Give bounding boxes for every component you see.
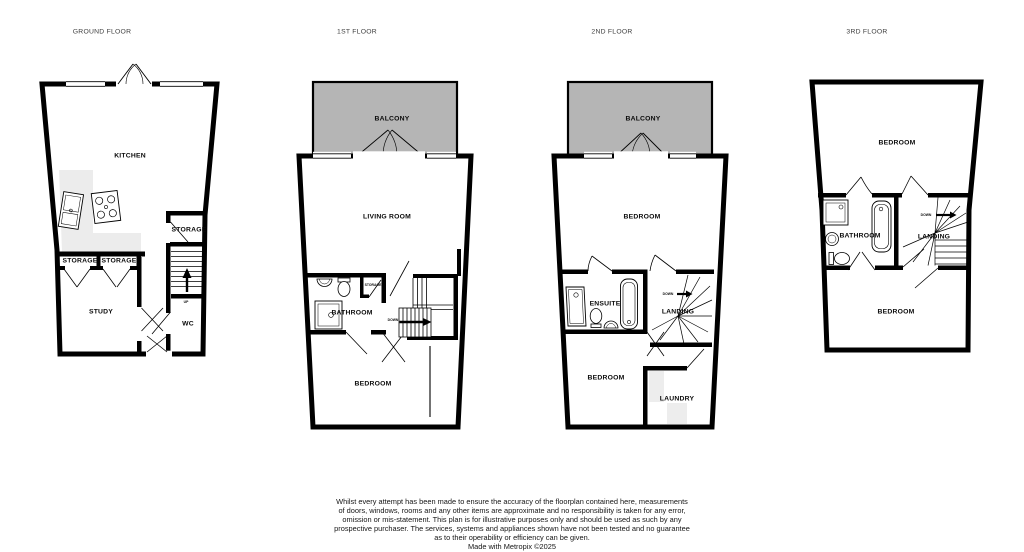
metropix-credit: Made with Metropix ©2025 bbox=[282, 542, 742, 551]
bathroom-toilet-icon bbox=[829, 253, 850, 265]
first-window-right bbox=[427, 152, 456, 161]
room-label-laundry: LAUNDRY bbox=[660, 396, 694, 403]
first-floor-plan bbox=[285, 55, 485, 435]
disclaimer-line: as to their operability or efficiency ca… bbox=[282, 533, 742, 542]
floorplan-page: GROUND FLOOR 1ST FLOOR 2ND FLOOR 3RD FLO… bbox=[0, 0, 1024, 552]
stove-icon bbox=[91, 191, 120, 224]
room-label-bathroom-1: BATHROOM bbox=[331, 310, 372, 317]
room-label-storage-left: STORAGE bbox=[63, 258, 98, 265]
room-label-bedroom-1: BEDROOM bbox=[355, 381, 392, 388]
second-window-right bbox=[670, 152, 696, 161]
floor-title-ground: GROUND FLOOR bbox=[73, 29, 132, 36]
floor-title-first: 1ST FLOOR bbox=[337, 29, 377, 36]
room-label-landing-3: LANDING bbox=[918, 234, 950, 241]
storage-label-small: STORAGE bbox=[365, 283, 382, 287]
room-label-balcony-1: BALCONY bbox=[374, 116, 409, 123]
room-label-balcony-2: BALCONY bbox=[625, 116, 660, 123]
first-door-gap bbox=[353, 151, 425, 161]
down-label-2: DOWN bbox=[663, 292, 674, 296]
room-label-landing-2: LANDING bbox=[662, 309, 694, 316]
room-label-wc: WC bbox=[182, 321, 194, 328]
room-label-bedroom-2-top: BEDROOM bbox=[624, 214, 661, 221]
up-label: UP bbox=[184, 300, 189, 304]
second-window-left bbox=[584, 152, 612, 161]
ensuite-toilet-icon bbox=[590, 309, 602, 328]
room-label-bathroom-3: BATHROOM bbox=[839, 233, 880, 240]
bathroom-shower-icon bbox=[823, 200, 848, 225]
toilet-icon bbox=[338, 278, 350, 297]
bathroom-sink-icon bbox=[826, 233, 839, 246]
down-label-1: DOWN bbox=[388, 318, 399, 322]
disclaimer-line: prospective purchaser. The services, sys… bbox=[282, 524, 742, 533]
second-door-gap bbox=[614, 151, 668, 161]
first-window-left bbox=[313, 152, 351, 161]
room-label-kitchen: KITCHEN bbox=[114, 153, 146, 160]
floor-title-second: 2ND FLOOR bbox=[591, 29, 632, 36]
second-floor-plan bbox=[540, 55, 740, 435]
ensuite-shower-icon bbox=[566, 287, 586, 326]
room-label-storage-main: STORAGE bbox=[172, 227, 207, 234]
room-label-bedroom-3-top: BEDROOM bbox=[879, 140, 916, 147]
ground-floor-plan bbox=[30, 55, 230, 365]
ground-door-swing-icon bbox=[116, 64, 152, 89]
disclaimer-line: Whilst every attempt has been made to en… bbox=[282, 497, 742, 506]
disclaimer-line: omission or mis-statement. This plan is … bbox=[282, 515, 742, 524]
bathtub-icon bbox=[621, 279, 638, 329]
bathtub-icon bbox=[872, 201, 891, 252]
room-label-ensuite: ENSUITE bbox=[590, 301, 621, 308]
room-label-study: STUDY bbox=[89, 309, 113, 316]
room-label-bedroom-3-bottom: BEDROOM bbox=[878, 309, 915, 316]
disclaimer-line: of doors, windows, rooms and any other i… bbox=[282, 506, 742, 515]
down-label-3: DOWN bbox=[921, 213, 932, 217]
floor-title-third: 3RD FLOOR bbox=[846, 29, 887, 36]
dryer-icon bbox=[667, 403, 687, 424]
ground-window-left bbox=[66, 80, 105, 89]
ground-window-right bbox=[160, 80, 203, 89]
room-label-bedroom-2-bottom: BEDROOM bbox=[588, 375, 625, 382]
room-label-storage-right: STORAGE bbox=[102, 258, 137, 265]
room-label-living-room: LIVING ROOM bbox=[363, 214, 411, 221]
disclaimer-text: Whilst every attempt has been made to en… bbox=[282, 497, 742, 551]
